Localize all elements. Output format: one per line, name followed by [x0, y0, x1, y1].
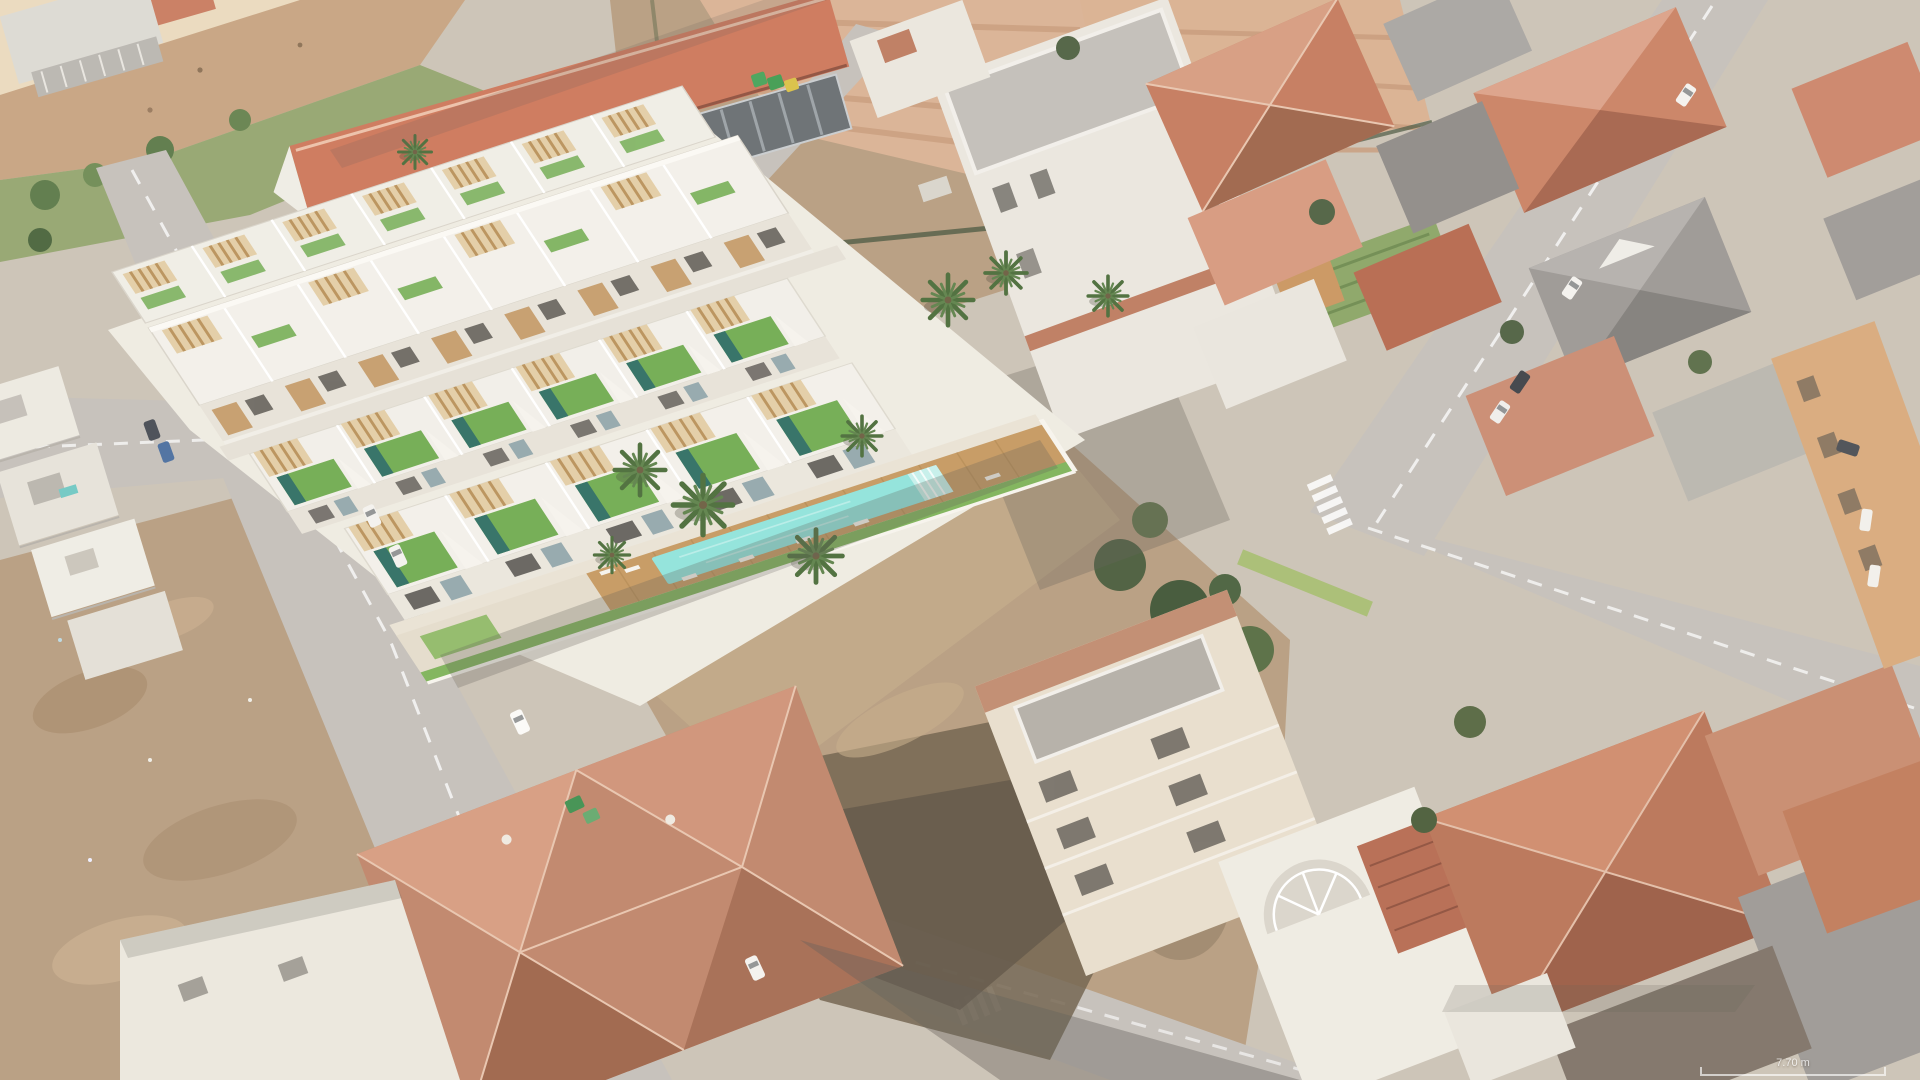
- aerial-render-canvas: [0, 0, 1920, 1080]
- aerial-scene: 7.70 m: [0, 0, 1920, 1080]
- scale-bar: 7.70 m: [1700, 1057, 1886, 1076]
- haze-overlay: [0, 0, 1920, 1080]
